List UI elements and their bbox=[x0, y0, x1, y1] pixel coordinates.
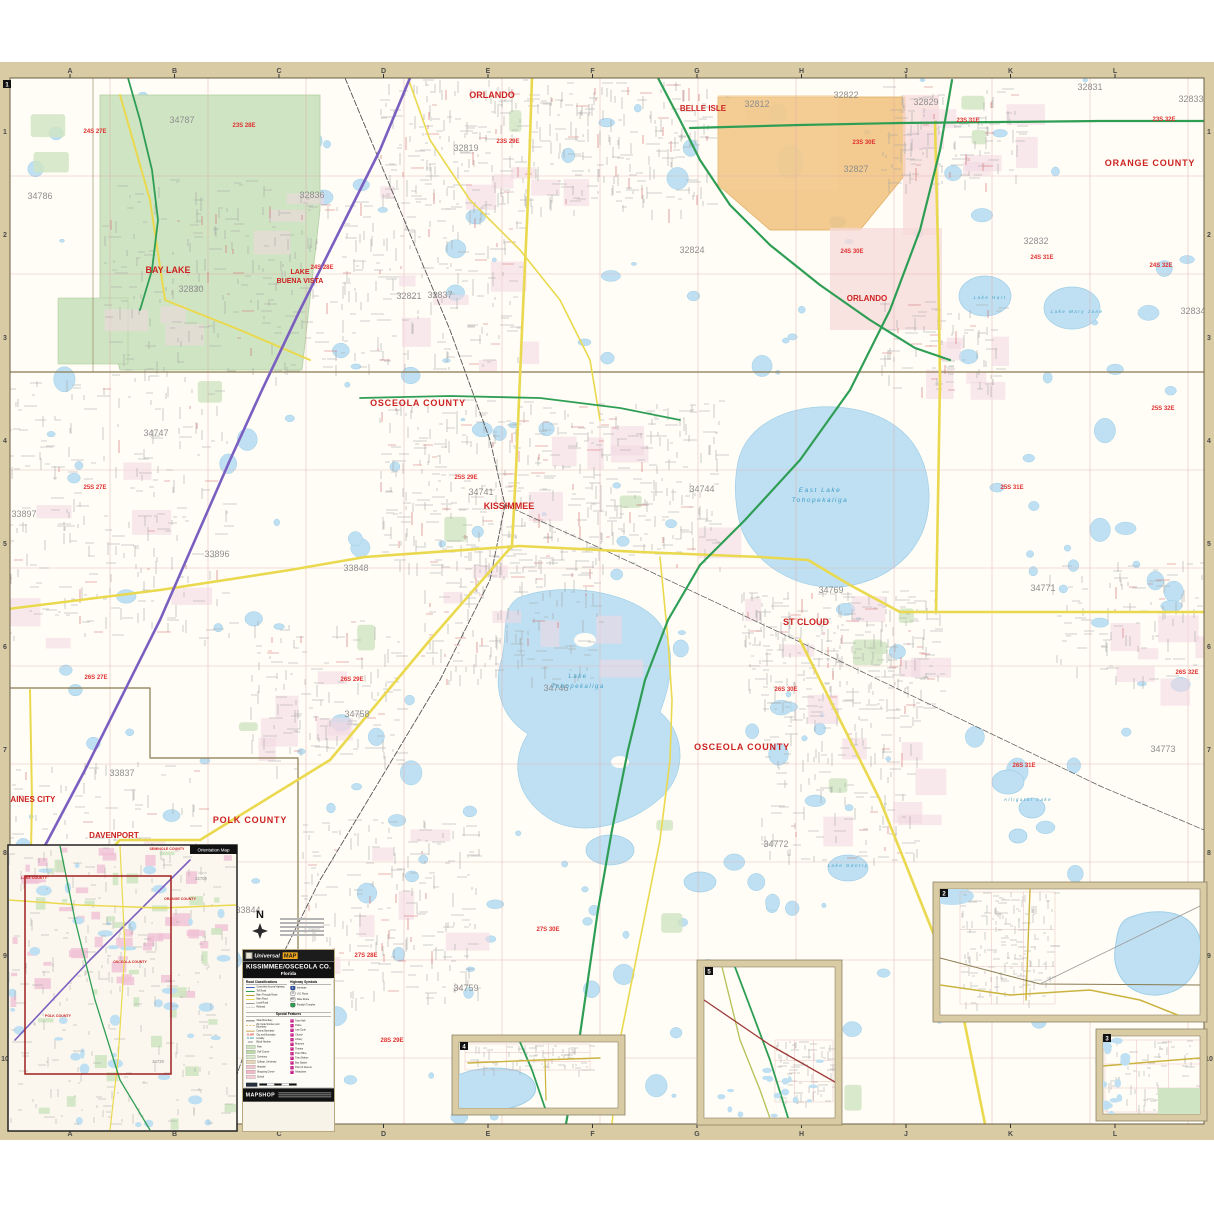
highway-shield-icon: 4 bbox=[290, 986, 295, 990]
svg-text:K: K bbox=[1008, 68, 1013, 75]
special-feature-row: State Boundary bbox=[246, 1019, 287, 1022]
poi-icon: • bbox=[290, 1019, 293, 1022]
svg-text:32709: 32709 bbox=[195, 876, 207, 881]
svg-text:BUENA VISTA: BUENA VISTA bbox=[277, 278, 324, 285]
data-provider-logo bbox=[246, 1083, 257, 1087]
svg-text:ST CLOUD: ST CLOUD bbox=[783, 617, 829, 627]
title-block: KISSIMMEE/OSCEOLA CO. Florida bbox=[243, 961, 334, 978]
special-feature-row: •Church bbox=[290, 1033, 331, 1036]
mapshop-footer: MAPSHOP bbox=[243, 1088, 334, 1101]
poi-icon: • bbox=[290, 1052, 293, 1055]
svg-text:32833: 32833 bbox=[1178, 94, 1203, 104]
north-arrow: N bbox=[247, 910, 273, 948]
poi-icon: • bbox=[290, 1024, 293, 1027]
svg-text:32829: 32829 bbox=[913, 97, 938, 107]
svg-text:24S 31E: 24S 31E bbox=[1030, 255, 1053, 261]
svg-text:A: A bbox=[67, 1131, 72, 1138]
svg-text:D: D bbox=[381, 1131, 386, 1138]
special-features-header: Special Features bbox=[246, 1012, 331, 1017]
poi-icon: • bbox=[290, 1071, 293, 1074]
svg-text:6: 6 bbox=[3, 644, 7, 651]
special-feature-row: •Museum bbox=[290, 1043, 331, 1046]
svg-text:26S 30E: 26S 30E bbox=[774, 687, 797, 693]
svg-text:32837: 32837 bbox=[427, 290, 452, 300]
svg-text:32824: 32824 bbox=[679, 245, 704, 255]
orientation-inset-tab: Orientation Map bbox=[190, 845, 237, 854]
special-feature-row: •Bus Station bbox=[290, 1061, 331, 1064]
svg-text:H: H bbox=[799, 68, 804, 75]
svg-text:F: F bbox=[590, 68, 595, 75]
svg-text:BAY LAKE: BAY LAKE bbox=[145, 265, 190, 275]
publisher-logo: Universal MAP bbox=[243, 950, 334, 961]
svg-text:ORANGE COUNTY: ORANGE COUNTY bbox=[1105, 158, 1195, 168]
svg-text:OSCEOLA COUNTY: OSCEOLA COUNTY bbox=[694, 742, 790, 752]
svg-text:1: 1 bbox=[1207, 129, 1211, 136]
highway-symbol-row: 535State Route bbox=[290, 997, 331, 1001]
poi-icon: • bbox=[290, 1033, 293, 1036]
svg-text:34741: 34741 bbox=[468, 487, 493, 497]
svg-text:27S 28E: 27S 28E bbox=[354, 953, 377, 959]
road-class-row: Controlled Access Highway bbox=[246, 986, 287, 989]
special-features-right-list: •Town Hall•Police•Law Court•Church•Libra… bbox=[290, 1018, 331, 1080]
svg-text:2: 2 bbox=[3, 232, 7, 239]
scale-bar bbox=[246, 1083, 331, 1087]
svg-text:DAVENPORT: DAVENPORT bbox=[89, 831, 139, 840]
highway-shield-icon bbox=[290, 1003, 295, 1007]
svg-text:25S 32E: 25S 32E bbox=[1151, 406, 1174, 412]
special-features-left-list: State BoundaryZip Code Number and Bounda… bbox=[246, 1018, 287, 1080]
poi-icon: • bbox=[290, 1029, 293, 1032]
special-feature-row: Park bbox=[246, 1045, 287, 1049]
poi-icon: • bbox=[290, 1043, 293, 1046]
svg-text:E: E bbox=[486, 68, 491, 75]
poi-icon: • bbox=[290, 1066, 293, 1069]
svg-text:34787: 34787 bbox=[169, 115, 194, 125]
svg-text:B: B bbox=[172, 68, 177, 75]
special-feature-row: Golf Course bbox=[246, 1050, 287, 1054]
brand-word-map: MAP bbox=[283, 952, 298, 959]
svg-text:32834: 32834 bbox=[1180, 306, 1205, 316]
svg-text:East Lake: East Lake bbox=[799, 487, 841, 494]
svg-text:F: F bbox=[590, 1131, 595, 1138]
grid-badge: 1 bbox=[3, 80, 11, 89]
special-feature-row: Zip Code Number and Boundary bbox=[246, 1023, 287, 1028]
publisher-mark-icon bbox=[246, 952, 253, 959]
svg-text:J: J bbox=[904, 1131, 908, 1138]
svg-text:24S 27E: 24S 27E bbox=[83, 129, 106, 135]
special-feature-row: •Law Court bbox=[290, 1029, 331, 1032]
highway-shield-icon: 17 bbox=[290, 992, 295, 996]
svg-text:26S 31E: 26S 31E bbox=[1012, 763, 1035, 769]
svg-text:32819: 32819 bbox=[453, 143, 478, 153]
svg-text:34759: 34759 bbox=[453, 983, 478, 993]
svg-text:POLK COUNTY: POLK COUNTY bbox=[45, 1014, 72, 1018]
svg-text:L: L bbox=[1113, 68, 1118, 75]
svg-text:SEMINOLE COUNTY: SEMINOLE COUNTY bbox=[150, 847, 186, 851]
special-feature-row: 1200Block Number bbox=[246, 1041, 287, 1043]
special-feature-row: •Police bbox=[290, 1024, 331, 1027]
svg-text:34769: 34769 bbox=[818, 585, 843, 595]
special-feature-row: CLAIRLocality bbox=[246, 1037, 287, 1039]
special-feature-row: •Point of Interest bbox=[290, 1066, 331, 1069]
road-class-row: Main Road bbox=[246, 998, 287, 1001]
highway-symbol-list: 4Interstate17U.S. Route535State RouteFlo… bbox=[290, 986, 331, 1007]
svg-text:2: 2 bbox=[1207, 232, 1211, 239]
svg-text:ORLANDO: ORLANDO bbox=[847, 294, 887, 303]
svg-text:23S 31E: 23S 31E bbox=[956, 118, 979, 124]
svg-text:34773: 34773 bbox=[1150, 744, 1175, 754]
svg-text:34747: 34747 bbox=[143, 428, 168, 438]
svg-text:25S 31E: 25S 31E bbox=[1000, 485, 1023, 491]
road-class-row: Railroad bbox=[246, 1006, 287, 1009]
special-feature-row: •Attractions bbox=[290, 1071, 331, 1074]
svg-text:33837: 33837 bbox=[109, 768, 134, 778]
svg-text:33897: 33897 bbox=[11, 509, 36, 519]
svg-text:9: 9 bbox=[1207, 953, 1211, 960]
svg-text:Lake Hart: Lake Hart bbox=[973, 295, 1006, 300]
svg-text:KISSIMMEE: KISSIMMEE bbox=[484, 501, 535, 511]
svg-text:34786: 34786 bbox=[27, 191, 52, 201]
map-subtitle: Florida bbox=[244, 971, 334, 976]
legend-body: Road Classifications Controlled Access H… bbox=[244, 979, 334, 1088]
svg-text:3: 3 bbox=[1207, 335, 1211, 342]
svg-text:32830: 32830 bbox=[178, 284, 203, 294]
svg-text:34744: 34744 bbox=[689, 484, 714, 494]
svg-text:26S 27E: 26S 27E bbox=[84, 675, 107, 681]
road-class-row: Main Through Route bbox=[246, 994, 287, 997]
svg-text:5: 5 bbox=[3, 541, 7, 548]
svg-text:24S 30E: 24S 30E bbox=[840, 249, 863, 255]
svg-text:34758: 34758 bbox=[344, 709, 369, 719]
special-feature-row: Cemetery bbox=[246, 1055, 287, 1059]
special-feature-row: Shopping Center bbox=[246, 1070, 287, 1074]
map-canvas: 23S 28E23S 29E23S 30E23S 31E23S 32E24S 2… bbox=[0, 0, 1214, 1214]
svg-text:LAKE COUNTY: LAKE COUNTY bbox=[21, 876, 48, 880]
svg-text:33848: 33848 bbox=[343, 563, 368, 573]
svg-text:32821: 32821 bbox=[396, 291, 421, 301]
svg-text:B: B bbox=[172, 1131, 177, 1138]
svg-text:32832: 32832 bbox=[1023, 236, 1048, 246]
svg-text:POLK COUNTY: POLK COUNTY bbox=[213, 815, 287, 825]
road-classifications-header: Road Classifications bbox=[246, 980, 287, 984]
svg-text:LAKE: LAKE bbox=[290, 269, 309, 276]
svg-text:32812: 32812 bbox=[744, 99, 769, 109]
svg-text:4: 4 bbox=[3, 438, 7, 445]
svg-text:7: 7 bbox=[3, 747, 7, 754]
svg-text:L: L bbox=[1113, 1131, 1118, 1138]
svg-text:23S 32E: 23S 32E bbox=[1152, 117, 1175, 123]
poi-icon: • bbox=[290, 1061, 293, 1064]
road-class-row: Local Road bbox=[246, 1002, 287, 1005]
svg-text:1: 1 bbox=[3, 129, 7, 136]
svg-text:34771: 34771 bbox=[1030, 583, 1055, 593]
highway-shield-icon: 535 bbox=[290, 997, 295, 1001]
svg-text:Tohopekaliga: Tohopekaliga bbox=[551, 684, 604, 690]
svg-text:A: A bbox=[67, 68, 72, 75]
grid-badge: 4 bbox=[460, 1042, 468, 1051]
svg-text:D: D bbox=[381, 68, 386, 75]
highway-symbol-row: 4Interstate bbox=[290, 986, 331, 990]
svg-text:23S 28E: 23S 28E bbox=[232, 123, 255, 129]
svg-text:25S 27E: 25S 27E bbox=[83, 485, 106, 491]
svg-text:G: G bbox=[694, 68, 700, 75]
svg-text:H: H bbox=[799, 1131, 804, 1138]
grid-badge: 3 bbox=[1103, 1034, 1111, 1043]
svg-text:24S 32E: 24S 32E bbox=[1149, 263, 1172, 269]
svg-text:27S 30E: 27S 30E bbox=[536, 927, 559, 933]
svg-text:9: 9 bbox=[3, 953, 7, 960]
svg-text:Orientation Map: Orientation Map bbox=[197, 848, 230, 853]
special-feature-row: •Train Station bbox=[290, 1057, 331, 1060]
svg-text:26S 32E: 26S 32E bbox=[1175, 670, 1198, 676]
svg-text:3: 3 bbox=[3, 335, 7, 342]
svg-text:K: K bbox=[1008, 1131, 1013, 1138]
road-classification-list: Controlled Access HighwayToll RoadMain T… bbox=[246, 986, 287, 1009]
special-feature-row: County Boundary bbox=[246, 1030, 287, 1033]
highway-symbol-row: 17U.S. Route bbox=[290, 992, 331, 996]
svg-text:Lake Gentry: Lake Gentry bbox=[827, 863, 868, 868]
special-feature-row: School bbox=[246, 1075, 287, 1079]
special-feature-row: CLAIRCity and Boundary bbox=[246, 1034, 287, 1036]
svg-text:Tohopekaliga: Tohopekaliga bbox=[792, 497, 848, 504]
mapshop-logo: MAPSHOP bbox=[246, 1092, 275, 1098]
svg-text:Lake: Lake bbox=[568, 674, 587, 680]
brand-word-universal: Universal bbox=[254, 952, 280, 959]
special-feature-row: College, University bbox=[246, 1060, 287, 1064]
north-label: N bbox=[247, 910, 273, 921]
svg-text:ORLANDO: ORLANDO bbox=[469, 90, 515, 100]
svg-text:C: C bbox=[276, 68, 281, 75]
svg-text:OSCEOLA COUNTY: OSCEOLA COUNTY bbox=[370, 398, 466, 408]
special-feature-row: •Town Hall bbox=[290, 1019, 331, 1022]
svg-text:25S 29E: 25S 29E bbox=[454, 475, 477, 481]
map-title: KISSIMMEE/OSCEOLA CO. bbox=[244, 963, 334, 970]
svg-text:34739: 34739 bbox=[152, 1059, 164, 1064]
highway-symbols-header: Highway Symbols bbox=[290, 980, 331, 984]
special-feature-row: •Theatre bbox=[290, 1047, 331, 1050]
road-class-row: Toll Road bbox=[246, 990, 287, 993]
compass-icon bbox=[252, 923, 268, 939]
svg-text:32827: 32827 bbox=[843, 164, 868, 174]
svg-text:23S 30E: 23S 30E bbox=[852, 140, 875, 146]
svg-text:32836: 32836 bbox=[299, 190, 324, 200]
svg-text:7: 7 bbox=[1207, 747, 1211, 754]
mapshop-address-lines bbox=[278, 1092, 331, 1097]
svg-text:J: J bbox=[904, 68, 908, 75]
poi-icon: • bbox=[290, 1047, 293, 1050]
svg-text:BELLE ISLE: BELLE ISLE bbox=[680, 104, 727, 113]
map-notes-lines bbox=[280, 916, 324, 938]
highway-symbol-row: Florida's Turnpike bbox=[290, 1003, 331, 1007]
scale-bar-segments bbox=[259, 1083, 296, 1085]
special-feature-row: •Library bbox=[290, 1038, 331, 1041]
svg-text:33896: 33896 bbox=[204, 549, 229, 559]
svg-text:HAINES CITY: HAINES CITY bbox=[5, 795, 56, 804]
legend-panel: Universal MAP KISSIMMEE/OSCEOLA CO. Flor… bbox=[243, 950, 334, 1131]
special-feature-row: Hospital bbox=[246, 1065, 287, 1069]
svg-text:8: 8 bbox=[1207, 850, 1211, 857]
svg-text:OSCEOLA COUNTY: OSCEOLA COUNTY bbox=[113, 960, 147, 964]
svg-text:28S 29E: 28S 29E bbox=[380, 1038, 403, 1044]
grid-badge: 5 bbox=[705, 967, 713, 976]
svg-text:23S 29E: 23S 29E bbox=[496, 139, 519, 145]
svg-text:32822: 32822 bbox=[833, 90, 858, 100]
svg-text:ORANGE COUNTY: ORANGE COUNTY bbox=[164, 897, 197, 901]
poi-icon: • bbox=[290, 1038, 293, 1041]
svg-text:4: 4 bbox=[1207, 438, 1211, 445]
svg-text:26S 29E: 26S 29E bbox=[340, 677, 363, 683]
svg-text:C: C bbox=[276, 1131, 281, 1138]
svg-text:6: 6 bbox=[1207, 644, 1211, 651]
map-sheet: 23S 28E23S 29E23S 30E23S 31E23S 32E24S 2… bbox=[0, 0, 1214, 1214]
poi-icon: • bbox=[290, 1057, 293, 1060]
grid-badge: 2 bbox=[940, 889, 948, 898]
svg-text:Lake Mary Jane: Lake Mary Jane bbox=[1050, 309, 1103, 314]
svg-text:5: 5 bbox=[1207, 541, 1211, 548]
svg-text:32831: 32831 bbox=[1077, 82, 1102, 92]
svg-text:34772: 34772 bbox=[763, 839, 788, 849]
svg-text:24S 28E: 24S 28E bbox=[310, 265, 333, 271]
svg-text:G: G bbox=[694, 1131, 700, 1138]
svg-text:Alligator Lake: Alligator Lake bbox=[1003, 797, 1052, 802]
special-feature-row: •Post Office bbox=[290, 1052, 331, 1055]
svg-text:E: E bbox=[486, 1131, 491, 1138]
svg-text:8: 8 bbox=[3, 850, 7, 857]
